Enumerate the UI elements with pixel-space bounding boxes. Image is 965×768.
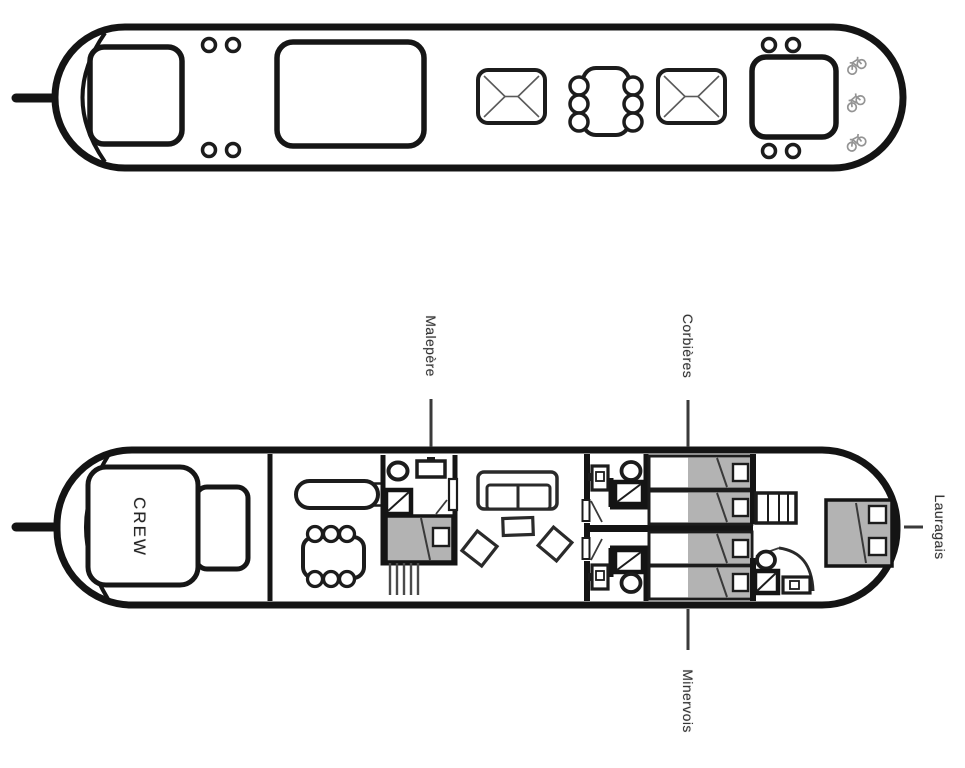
double-bed bbox=[826, 500, 892, 566]
double-bed bbox=[386, 516, 453, 562]
toilet bbox=[622, 462, 641, 480]
dining-table bbox=[303, 527, 364, 587]
wardrobe bbox=[756, 493, 796, 523]
washbasin bbox=[588, 565, 608, 589]
crew-label: CREW bbox=[129, 497, 149, 557]
stern-roof-hatch bbox=[752, 57, 836, 137]
lower-deck bbox=[16, 399, 923, 650]
coffee-table bbox=[503, 517, 534, 535]
deck-plan-drawing bbox=[0, 0, 965, 768]
upper-deck bbox=[16, 27, 903, 168]
shower bbox=[755, 571, 778, 593]
single-bed bbox=[649, 532, 752, 565]
washbasin bbox=[783, 577, 810, 593]
sun-lounger bbox=[658, 70, 725, 123]
shower bbox=[386, 490, 411, 514]
toilet bbox=[622, 574, 641, 592]
galley-bar-counter bbox=[296, 481, 384, 508]
single-bed bbox=[649, 491, 752, 524]
cabin-door bbox=[449, 479, 457, 510]
cabin-label-minervois: Minervois bbox=[680, 669, 696, 733]
cabin-door bbox=[583, 538, 590, 559]
single-bed bbox=[649, 456, 752, 489]
sofa bbox=[478, 472, 557, 509]
toilet bbox=[757, 552, 775, 569]
shower bbox=[615, 550, 643, 572]
cabin-label-malepere: Malepère bbox=[423, 315, 439, 377]
bow-hatch bbox=[90, 47, 182, 144]
barge-deck-plan: CREW Malepère Corbières Minervois Laurag… bbox=[0, 0, 965, 768]
shower bbox=[615, 482, 643, 504]
cabin-label-corbieres: Corbières bbox=[680, 314, 696, 378]
single-bed bbox=[649, 566, 752, 599]
sun-lounger bbox=[478, 70, 545, 123]
crew-quarters bbox=[88, 467, 248, 585]
washbasin bbox=[588, 466, 608, 490]
cabin-label-lauragais: Lauragais bbox=[932, 494, 948, 559]
washbasin bbox=[417, 457, 445, 477]
deck-dining-table bbox=[570, 68, 642, 135]
toilet bbox=[389, 463, 408, 480]
saloon-roof-hatch bbox=[277, 42, 424, 146]
cabin-door bbox=[583, 500, 590, 521]
